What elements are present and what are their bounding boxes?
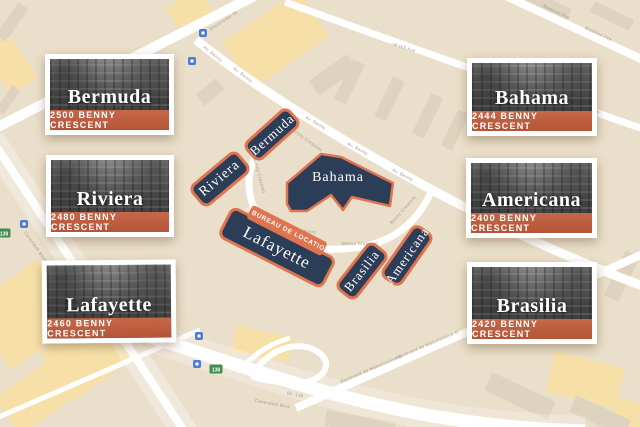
card-title: Bahama: [472, 87, 592, 110]
building-photo: Americana 2400 BENNY CRESCENT: [471, 163, 592, 233]
transit-icon: [199, 29, 207, 37]
transit-icon: [188, 57, 196, 65]
building-photo: Lafayette 2460 BENNY CRESCENT: [47, 264, 172, 338]
transit-icon: [195, 332, 203, 340]
card-address: 2500 BENNY CRESCENT: [50, 110, 169, 130]
card-address: 2420 BENNY CRESCENT: [472, 319, 592, 339]
map-building-label: Bahama: [312, 170, 364, 185]
card-address: 2480 BENNY CRESCENT: [51, 212, 169, 232]
building-photo: Riviera 2480 BENNY CRESCENT: [51, 160, 169, 232]
transit-icon: [193, 360, 201, 368]
card-title: Lafayette: [47, 293, 171, 317]
route-138-shield: 138: [0, 229, 11, 238]
transit-icon: [20, 220, 28, 228]
card-address: 2444 BENNY CRESCENT: [472, 111, 592, 131]
map-infographic: Sherbrooke St Av. Benny Av. Benny Av. Be…: [0, 0, 640, 427]
house-icon: ⌂: [243, 206, 251, 214]
card-americana[interactable]: Americana 2400 BENNY CRESCENT: [466, 158, 597, 238]
card-address: 2460 BENNY CRESCENT: [47, 317, 171, 338]
card-brasilia[interactable]: Brasilia 2420 BENNY CRESCENT: [467, 262, 597, 344]
card-bahama[interactable]: Bahama 2444 BENNY CRESCENT: [467, 58, 597, 136]
building-photo: Bahama 2444 BENNY CRESCENT: [472, 63, 592, 131]
route-138-shield: 138: [210, 365, 223, 374]
card-address: 2400 BENNY CRESCENT: [471, 213, 592, 233]
card-title: Bermuda: [50, 86, 169, 109]
building-photo: Bermuda 2500 BENNY CRESCENT: [50, 59, 169, 130]
svg-text:138: 138: [0, 232, 8, 238]
card-title: Brasilia: [472, 295, 592, 318]
card-riviera[interactable]: Riviera 2480 BENNY CRESCENT: [46, 155, 174, 237]
card-title: Riviera: [51, 188, 169, 211]
card-bermuda[interactable]: Bermuda 2500 BENNY CRESCENT: [45, 54, 174, 135]
card-title: Americana: [471, 189, 592, 212]
svg-text:138: 138: [212, 368, 221, 374]
card-lafayette[interactable]: Lafayette 2460 BENNY CRESCENT: [42, 259, 177, 343]
building-photo: Brasilia 2420 BENNY CRESCENT: [472, 267, 592, 339]
